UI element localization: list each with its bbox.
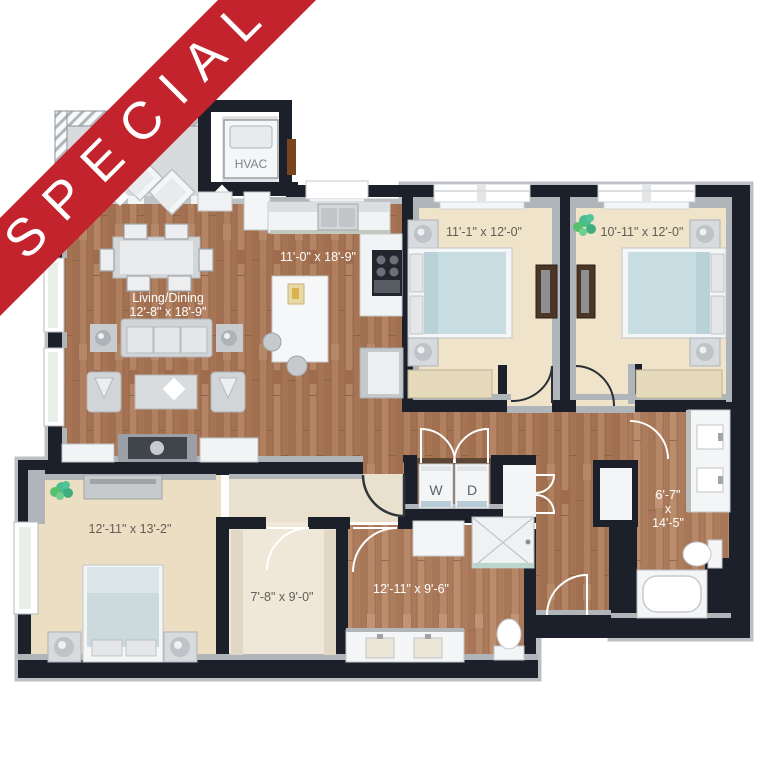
svg-text:11'-0" x 18'-9": 11'-0" x 18'-9": [280, 250, 356, 264]
svg-text:D: D: [467, 482, 477, 498]
svg-text:10'-11" x 12'-0": 10'-11" x 12'-0": [601, 225, 684, 239]
svg-text:HVAC: HVAC: [235, 157, 268, 171]
svg-text:W: W: [429, 482, 443, 498]
svg-text:x: x: [665, 502, 672, 516]
svg-text:6'-7": 6'-7": [656, 488, 681, 502]
svg-text:12'-8" x 18'-9": 12'-8" x 18'-9": [130, 305, 207, 319]
svg-text:11'-1" x 12'-0": 11'-1" x 12'-0": [446, 225, 522, 239]
svg-text:7'-8" x 9'-0": 7'-8" x 9'-0": [251, 590, 314, 604]
svg-text:Living/Dining: Living/Dining: [132, 291, 204, 305]
svg-text:14'-5": 14'-5": [652, 516, 684, 530]
svg-text:12'-11" x 9'-6": 12'-11" x 9'-6": [373, 582, 449, 596]
svg-text:12'-11" x 13'-2": 12'-11" x 13'-2": [89, 522, 172, 536]
